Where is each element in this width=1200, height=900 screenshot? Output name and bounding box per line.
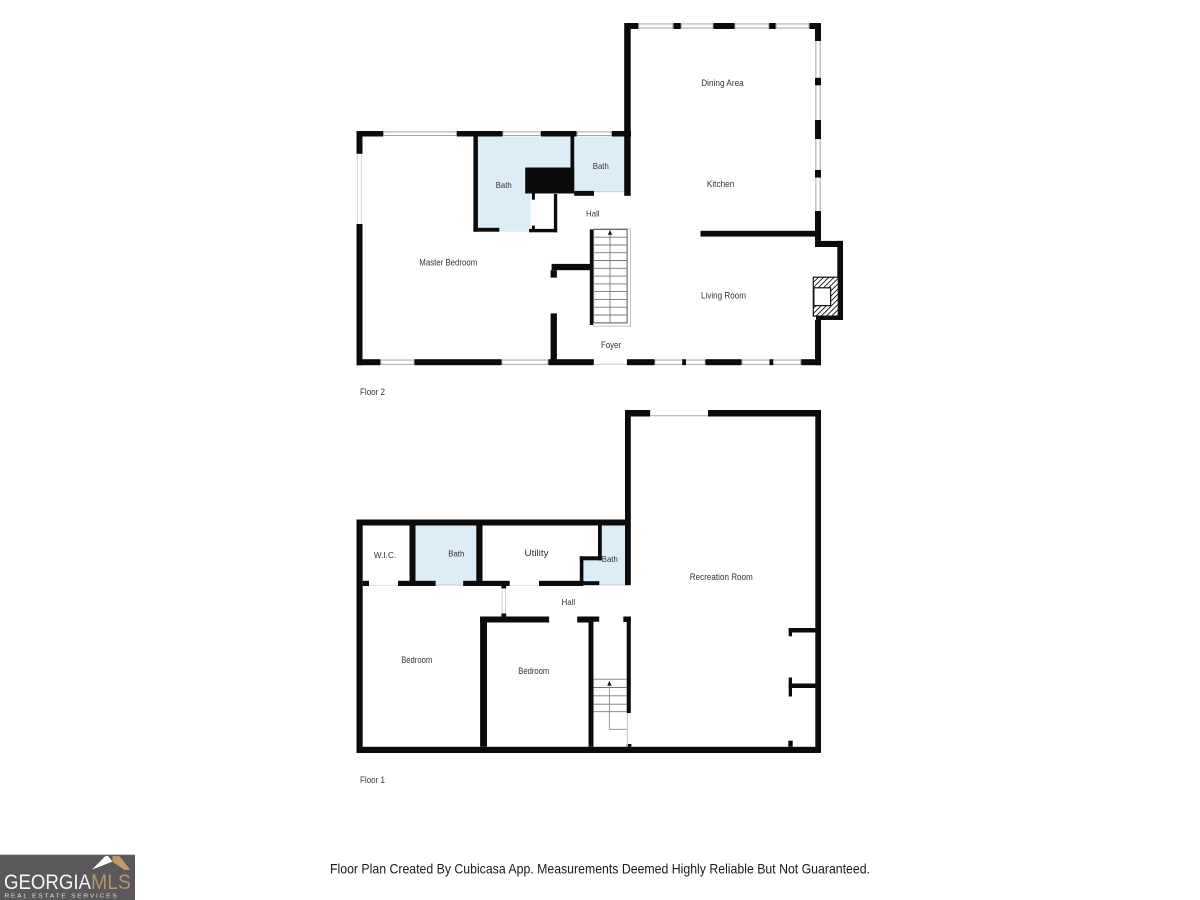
svg-text:GEORGIA: GEORGIA [4,870,92,894]
svg-text:Hall: Hall [562,597,576,607]
svg-text:Bath: Bath [593,161,609,171]
svg-text:Bath: Bath [602,554,618,564]
svg-text:REAL ESTATE SERVICES: REAL ESTATE SERVICES [5,894,119,900]
svg-text:Floor 1: Floor 1 [360,775,385,785]
svg-text:Bedroom: Bedroom [518,666,549,676]
svg-text:Hall: Hall [586,208,600,218]
svg-text:Dining Area: Dining Area [701,78,744,88]
svg-text:Kitchen: Kitchen [707,179,735,189]
svg-text:Bath: Bath [496,180,512,190]
svg-text:Bath: Bath [448,549,464,559]
svg-text:Utility: Utility [525,548,549,558]
svg-text:MLS: MLS [91,870,131,894]
svg-text:Floor Plan Created By Cubicasa: Floor Plan Created By Cubicasa App. Meas… [330,862,870,877]
svg-text:Floor 2: Floor 2 [360,387,385,397]
svg-text:Foyer: Foyer [601,340,621,350]
svg-text:Recreation Room: Recreation Room [690,572,753,582]
svg-text:Bedroom: Bedroom [401,655,432,665]
svg-text:Master Bedroom: Master Bedroom [419,257,477,267]
svg-text:Living Room: Living Room [701,290,746,300]
svg-text:W.I.C.: W.I.C. [374,550,397,560]
